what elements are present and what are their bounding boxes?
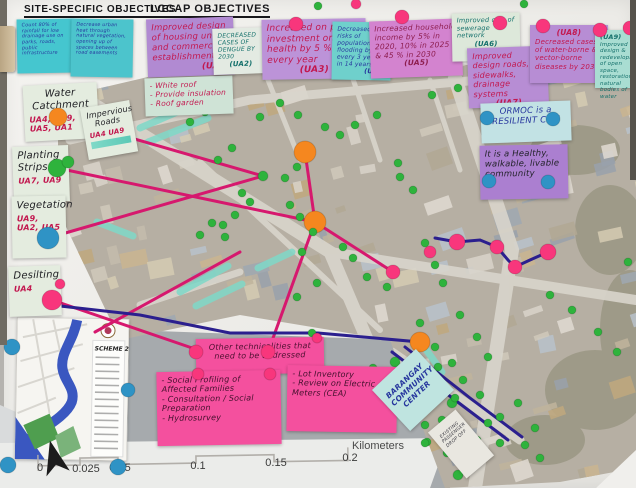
lccap-objectives-header: LCCAP OBJECTIVES	[150, 3, 270, 18]
note-ua1-actions: - White roof - Provide insulation - Roof…	[144, 75, 233, 116]
note-site-objective-1: Count 80% of rainfall for low drainage u…	[17, 19, 75, 74]
note-text: Decreased cases of water-borne & vector-…	[535, 38, 603, 71]
note-vision-healthy-community: It is a Healthy, walkable, livable commu…	[480, 144, 569, 200]
action-line: - Roof garden	[150, 97, 228, 109]
inset-scheme-label: SCHEME 2	[95, 345, 129, 353]
note-text: Other technicalities that need to be add…	[201, 341, 319, 362]
note-vision-resilient-city: ORMOC is a RESILIENT CITY	[480, 100, 571, 143]
scale-tick-5: 0.2	[342, 452, 357, 464]
note-refs: UA9, UA2, UA5	[17, 213, 61, 233]
note-refs: UA4	[14, 283, 56, 294]
tech-item: - Social Profiling of Affected Families	[161, 374, 275, 395]
note-impervious-roads: Impervious Roads UA4 UA9	[80, 100, 138, 160]
scale-unit-label: Kilometers	[352, 440, 404, 452]
note-ref: (UA2)	[218, 60, 263, 70]
workshop-board-photo: SCHEME 2 0 0.025 0.05 0.1 0.15 0.2 Kilom…	[0, 0, 636, 488]
note-vegetation: Vegetation UA9, UA2, UA5	[11, 196, 66, 259]
note-desilting: Desilting UA4	[8, 265, 62, 317]
note-planting-strips: Planting Strips UA7, UA9	[12, 145, 70, 203]
note-technicalities-left: - Social Profiling of Affected Families …	[156, 370, 281, 446]
board-edge-right	[630, 0, 636, 180]
tech-item: - Hydrosurvey	[162, 412, 276, 423]
note-title: Desilting	[13, 269, 55, 282]
scale-tick-4: 0.15	[265, 457, 286, 469]
note-site-objective-2: Decrease urban heat through natural vege…	[70, 18, 133, 77]
scale-tick-2: 0.05	[109, 462, 130, 474]
note-ua5: Increased household income by 5% in 2020…	[369, 18, 463, 78]
note-title: Planting Strips	[17, 149, 64, 174]
note-text: DECREASED CASES OF DENGUE BY 2030	[217, 31, 263, 61]
note-refs: UA7, UA9	[18, 175, 64, 186]
note-title: Vegetation	[17, 200, 61, 213]
tech-item: - Consultation / Social Preparation	[162, 393, 276, 414]
note-text: Decrease urban heat through natural vege…	[76, 23, 129, 58]
scale-tick-1: 0.025	[72, 463, 100, 475]
scale-tick-0: 0	[37, 462, 43, 474]
inset-landuse-map: SCHEME 2	[15, 317, 129, 461]
note-ua2: DECREASED CASES OF DENGUE BY 2030 (UA2)	[212, 27, 269, 75]
note-text: Count 80% of rainfall for low drainage u…	[22, 23, 70, 58]
note-text: Increased household income by 5% in 2020…	[374, 23, 457, 61]
note-text: Improved cov. of sewerage network	[457, 16, 515, 40]
note-ref: (UA8)	[535, 29, 603, 38]
note-text: ORMOC is a RESILIENT CITY	[485, 105, 566, 128]
scale-tick-3: 0.1	[190, 460, 205, 472]
binder-clip	[0, 26, 15, 72]
note-text: EXISTING PASSENGER DROP OFF	[438, 420, 468, 449]
note-text: It is a Healthy, walkable, livable commu…	[485, 148, 564, 179]
